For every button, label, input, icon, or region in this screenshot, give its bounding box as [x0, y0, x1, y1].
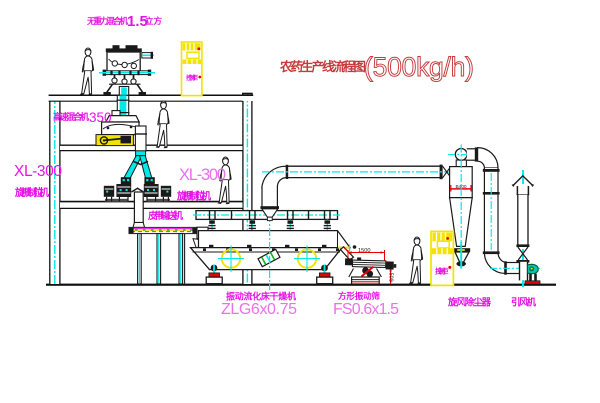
svg-text:FS0.6x1.5: FS0.6x1.5 — [333, 301, 399, 318]
svg-text:旋振制粒机: 旋振制粒机 — [14, 186, 49, 199]
svg-text:(500kg/h): (500kg/h) — [364, 52, 474, 82]
svg-text:XL-300: XL-300 — [179, 166, 226, 184]
svg-text:高速混合机: 高速混合机 — [53, 111, 89, 122]
svg-text:皮带输送机: 皮带输送机 — [147, 210, 183, 222]
svg-text:方形振动筛: 方形振动筛 — [338, 291, 380, 301]
svg-text:500: 500 — [388, 273, 394, 282]
svg-text:农药生产线流程图: 农药生产线流程图 — [279, 59, 366, 74]
svg-text:无重力混合机: 无重力混合机 — [86, 16, 128, 26]
svg-text:引风机: 引风机 — [511, 297, 536, 309]
svg-text:1500: 1500 — [358, 248, 370, 254]
svg-text:控制柜: 控制柜 — [435, 267, 449, 276]
svg-text:控制柜: 控制柜 — [186, 74, 198, 82]
svg-text:XL-300: XL-300 — [14, 163, 62, 180]
svg-text:350: 350 — [89, 110, 112, 125]
svg-text:立方: 立方 — [145, 16, 163, 26]
svg-text:旋振制粒机: 旋振制粒机 — [176, 190, 211, 203]
svg-text:ZLG6x0.75: ZLG6x0.75 — [221, 301, 297, 318]
svg-text:旋风除尘器: 旋风除尘器 — [447, 297, 491, 309]
svg-text:振动流化床干燥机: 振动流化床干燥机 — [226, 291, 296, 302]
